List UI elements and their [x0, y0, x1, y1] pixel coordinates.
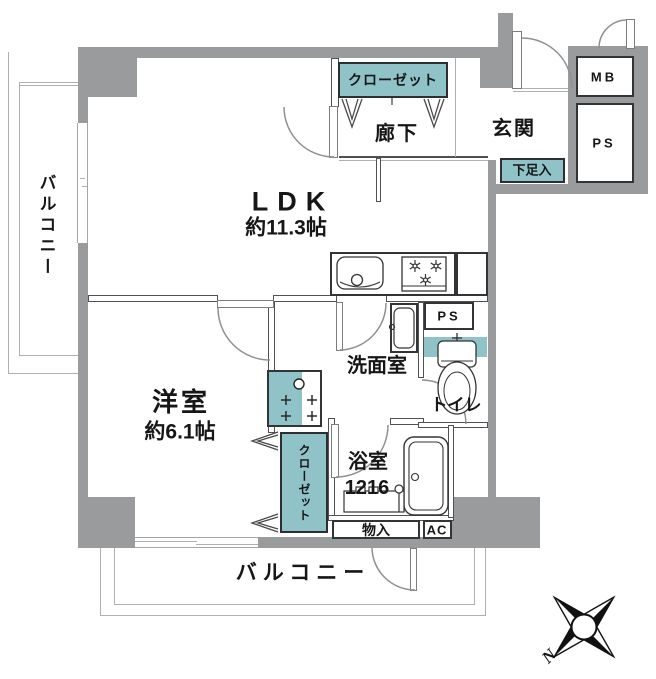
- ldk-label: LDK: [252, 189, 335, 216]
- door-swing-icon: [218, 308, 270, 360]
- washing-machine-icon: [390, 308, 415, 348]
- ldk-area-label: 約11.3帖: [245, 218, 327, 239]
- balcony-bottom-label: バルコニー: [236, 563, 371, 584]
- shoe-cabinet-label: 下足入: [512, 164, 551, 177]
- door-swing-icon: [522, 38, 572, 88]
- toilet-label: トイレ: [431, 397, 482, 414]
- pipe-shaft-kitchen-label: PS: [437, 310, 460, 323]
- pipe-shaft-upper-label: PS: [592, 137, 615, 150]
- storage-label: 物入: [362, 523, 390, 537]
- bathroom-label: 浴室: [348, 452, 388, 472]
- meter-box-label: MB: [591, 71, 617, 84]
- door-swing-icon: [340, 303, 386, 350]
- door-swing-icon: [284, 107, 334, 157]
- bedroom-area-label: 約6.1帖: [144, 422, 215, 443]
- balcony-left-label: バルコニー: [38, 174, 55, 279]
- stove-icon: [402, 257, 446, 291]
- door-swing-icon: [372, 548, 415, 590]
- door-swing-icon: [599, 20, 627, 48]
- bathroom-size-label: 1216: [345, 478, 390, 498]
- hallway-label: 廊下: [375, 124, 419, 144]
- bedroom-label: 洋室: [152, 389, 210, 415]
- kitchen-sink-icon: [337, 257, 383, 289]
- hall-closet-label: クローゼット: [348, 73, 438, 87]
- bedroom-closet-label: クローゼット: [298, 444, 310, 522]
- bathtub-icon: [404, 437, 448, 515]
- compass-rose-icon: [525, 568, 644, 679]
- ac-label: AC: [427, 524, 448, 537]
- floor-plan: LDK 約11.3帖 洋室 約6.1帖 廊下 玄関 クローゼット 下足入 MB …: [0, 0, 656, 679]
- vanity-icon: [281, 379, 317, 421]
- entrance-label: 玄関: [492, 119, 536, 139]
- washroom-label: 洗面室: [347, 356, 407, 376]
